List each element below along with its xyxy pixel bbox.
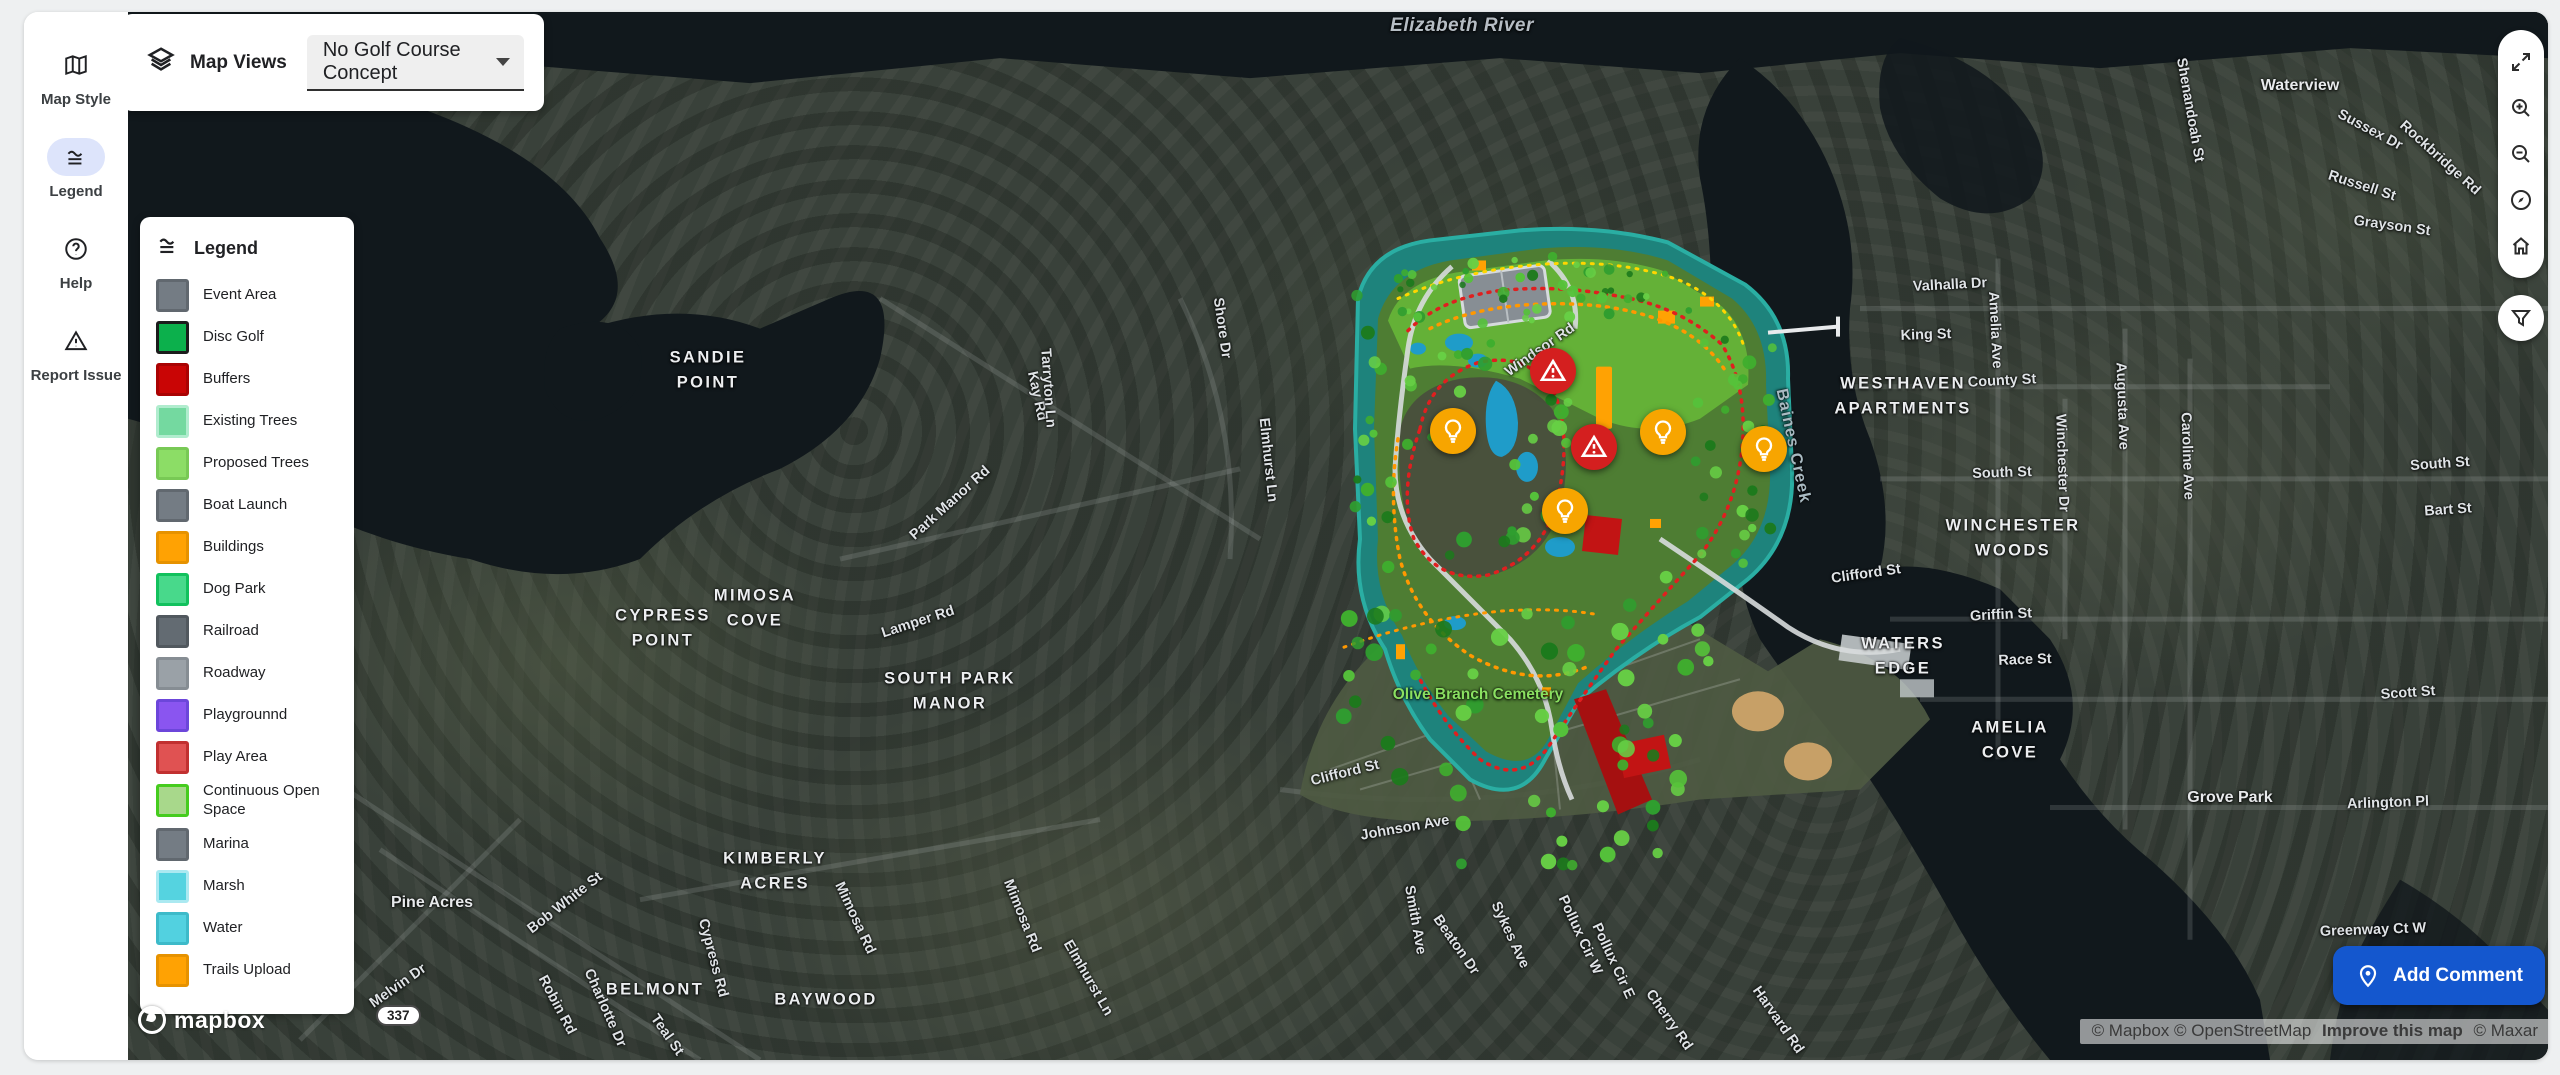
legend-item: Water <box>156 912 338 946</box>
legend-swatch <box>156 531 189 564</box>
map-canvas[interactable]: Elizabeth RiverBaines CreekOlive Branch … <box>128 12 2548 1060</box>
legend-item: Continuous Open Space <box>156 782 338 820</box>
sidebar-item-label: Report Issue <box>31 367 122 384</box>
route-shield-337: 337 <box>376 1005 421 1026</box>
legend-item-label: Railroad <box>203 622 259 641</box>
map-view-select[interactable]: No Golf Course Concept <box>307 35 524 91</box>
legend-swatch <box>156 657 189 690</box>
filter-button[interactable] <box>2498 295 2544 341</box>
layers-icon <box>146 45 176 80</box>
left-sidebar: Map Style Legend Help Report Issue <box>24 12 128 1060</box>
legend-swatch <box>156 784 189 817</box>
alert-icon <box>1580 433 1608 461</box>
idea-icon <box>1439 417 1467 445</box>
sidebar-item-map-style[interactable]: Map Style <box>41 46 111 108</box>
legend-item: Existing Trees <box>156 404 338 438</box>
legend-swatch <box>156 363 189 396</box>
legend-item: Roadway <box>156 656 338 690</box>
idea-icon <box>1750 435 1778 463</box>
legend-swatch <box>156 828 189 861</box>
expand-icon <box>2509 50 2533 74</box>
mapbox-logo[interactable]: mapbox <box>138 1006 265 1034</box>
fullscreen-button[interactable] <box>2501 42 2541 82</box>
attribution-copyrights: © Mapbox © OpenStreetMap <box>2092 1021 2312 1040</box>
sidebar-item-label: Map Style <box>41 91 111 108</box>
idea-marker[interactable] <box>1640 409 1686 455</box>
legend-item-label: Marsh <box>203 877 245 896</box>
app-window: Map Style Legend Help Report Issue <box>24 12 2548 1060</box>
zoom-in-button[interactable] <box>2501 88 2541 128</box>
home-button[interactable] <box>2501 226 2541 266</box>
legend-item: Proposed Trees <box>156 446 338 480</box>
legend-item-label: Play Area <box>203 748 267 767</box>
add-comment-label: Add Comment <box>2393 965 2523 987</box>
sidebar-item-label: Legend <box>49 183 102 200</box>
legend-swatch <box>156 447 189 480</box>
pin-icon <box>2355 963 2381 989</box>
sidebar-item-legend[interactable]: Legend <box>47 138 105 200</box>
mapbox-logo-icon <box>138 1006 166 1034</box>
legend-item-label: Roadway <box>203 664 266 683</box>
legend-item: Boat Launch <box>156 488 338 522</box>
legend-item: Event Area <box>156 278 338 312</box>
legend-swatch <box>156 573 189 606</box>
legend-item-label: Dog Park <box>203 580 266 599</box>
legend-item-label: Marina <box>203 835 249 854</box>
filter-icon <box>2509 306 2533 330</box>
mapbox-wordmark: mapbox <box>174 1007 265 1034</box>
legend-item-label: Playgrounnd <box>203 706 287 725</box>
legend-item: Buffers <box>156 362 338 396</box>
map-attribution: © Mapbox © OpenStreetMap Improve this ma… <box>2080 1019 2548 1044</box>
issue-marker[interactable] <box>1571 424 1617 470</box>
legend-swatch <box>156 615 189 648</box>
sidebar-item-report-issue[interactable]: Report Issue <box>31 322 122 384</box>
legend-swatch <box>156 741 189 774</box>
legend-item-label: Proposed Trees <box>203 454 309 473</box>
map-views-label: Map Views <box>190 52 287 74</box>
legend-icon <box>63 144 89 170</box>
legend-item-label: Disc Golf <box>203 328 264 347</box>
warning-icon <box>63 328 89 354</box>
legend-item-label: Buffers <box>203 370 250 389</box>
legend-item-label: Trails Upload <box>203 961 291 980</box>
legend-swatch <box>156 405 189 438</box>
legend-item: Disc Golf <box>156 320 338 354</box>
legend-item: Railroad <box>156 614 338 648</box>
idea-marker[interactable] <box>1741 426 1787 472</box>
map-icon <box>63 52 89 78</box>
improve-this-map-link[interactable]: Improve this map <box>2322 1021 2463 1040</box>
legend-icon <box>156 233 182 264</box>
sidebar-item-label: Help <box>60 275 93 292</box>
zoom-out-icon <box>2509 142 2533 166</box>
legend-swatch <box>156 954 189 987</box>
legend-item-label: Event Area <box>203 286 276 305</box>
map-controls <box>2498 30 2544 278</box>
map-overlay-graphics <box>128 12 2548 1060</box>
compass-icon <box>2509 188 2533 212</box>
legend-item-label: Buildings <box>203 538 264 557</box>
idea-icon <box>1649 418 1677 446</box>
zoom-out-button[interactable] <box>2501 134 2541 174</box>
home-icon <box>2509 234 2533 258</box>
issue-marker[interactable] <box>1530 348 1576 394</box>
compass-button[interactable] <box>2501 180 2541 220</box>
legend-swatch <box>156 489 189 522</box>
attribution-maxar: © Maxar <box>2474 1021 2538 1040</box>
map-view-selected-value: No Golf Course Concept <box>323 39 496 85</box>
legend-title: Legend <box>194 238 258 259</box>
help-icon <box>63 236 89 262</box>
legend-swatch <box>156 870 189 903</box>
legend-item: Trails Upload <box>156 954 338 988</box>
legend-swatch <box>156 699 189 732</box>
legend-item: Marsh <box>156 870 338 904</box>
legend-item: Dog Park <box>156 572 338 606</box>
legend-item: Play Area <box>156 740 338 774</box>
legend-swatch <box>156 321 189 354</box>
legend-item-label: Boat Launch <box>203 496 287 515</box>
idea-icon <box>1551 497 1579 525</box>
legend-swatch <box>156 912 189 945</box>
legend-item-label: Continuous Open Space <box>203 782 338 820</box>
add-comment-button[interactable]: Add Comment <box>2333 946 2545 1005</box>
zoom-in-icon <box>2509 96 2533 120</box>
legend-panel: Legend Event Area Disc Golf Buffers Exis… <box>140 217 354 1014</box>
legend-item: Marina <box>156 828 338 862</box>
legend-item: Buildings <box>156 530 338 564</box>
idea-marker[interactable] <box>1542 488 1588 534</box>
legend-item-label: Water <box>203 919 242 938</box>
chevron-down-icon <box>496 58 510 66</box>
idea-marker[interactable] <box>1430 408 1476 454</box>
sidebar-item-help[interactable]: Help <box>47 230 105 292</box>
legend-item-label: Existing Trees <box>203 412 297 431</box>
map-views-card: Map Views No Golf Course Concept <box>128 14 544 111</box>
alert-icon <box>1539 357 1567 385</box>
legend-item: Playgrounnd <box>156 698 338 732</box>
legend-swatch <box>156 279 189 312</box>
